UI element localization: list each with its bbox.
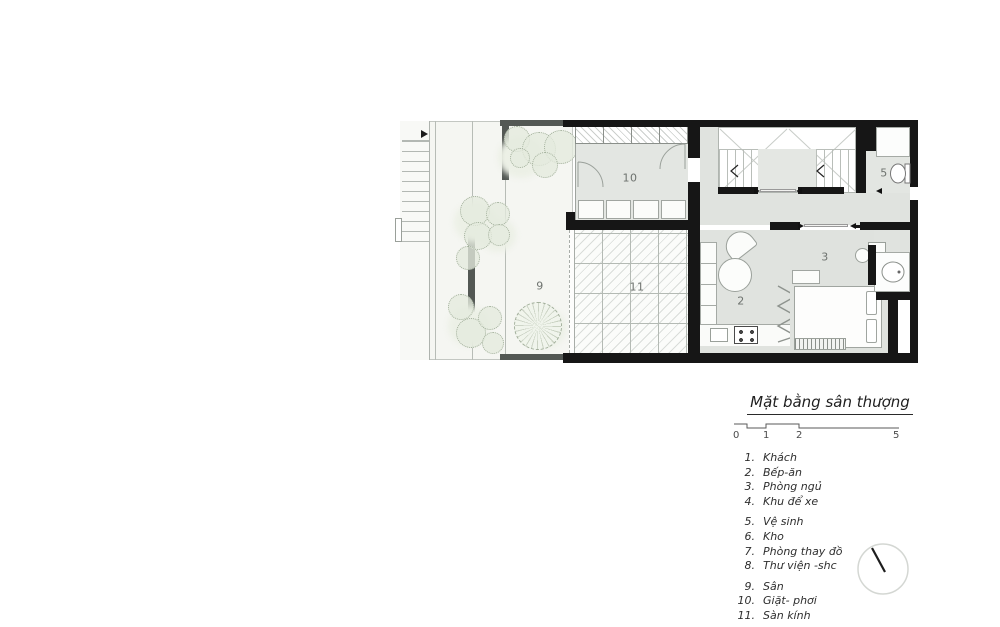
tree-icon <box>482 332 504 354</box>
tree-icon <box>488 224 510 246</box>
washer-icon <box>661 200 687 219</box>
stair-direction-arrow-icon <box>421 130 428 138</box>
interior-wall <box>770 222 800 230</box>
stair-arrow-icon <box>816 164 826 178</box>
washer-icon <box>606 200 632 219</box>
gray-wall <box>500 120 564 126</box>
door-arrow-icon <box>798 223 804 229</box>
round-table <box>718 258 752 292</box>
shower <box>876 127 910 157</box>
planter-line <box>435 121 436 360</box>
floor-plan-drawing: 9 10 11 2 3 5 <box>398 118 920 365</box>
sliding-door <box>760 189 796 192</box>
plan-title: Mặt bằng sân thượng <box>726 392 934 415</box>
stair-arrow-icon <box>730 164 740 178</box>
stove-icon <box>734 326 758 344</box>
tree-icon <box>456 246 480 270</box>
tree-icon <box>532 152 558 178</box>
nightstand <box>792 270 820 284</box>
tree-icon <box>486 202 510 226</box>
legend-item: 6.Kho <box>733 530 843 545</box>
stair-landing <box>758 149 816 192</box>
wall-notch <box>395 218 402 242</box>
room-label-kitchen: 2 <box>737 295 745 308</box>
door-arrow-icon <box>876 188 882 194</box>
legend-item: 5.Vệ sinh <box>733 515 843 530</box>
interior-wall <box>798 187 844 194</box>
gray-wall <box>500 354 564 360</box>
tree-icon <box>448 294 474 320</box>
scale-tick-2: 2 <box>796 430 802 441</box>
legend-item: 7.Phòng thay đồ <box>733 545 843 560</box>
washer-icon <box>633 200 659 219</box>
legend-item: 1.Khách <box>733 451 843 466</box>
interior-wall <box>868 245 876 285</box>
door-opening <box>688 158 700 182</box>
interior-wall <box>718 187 758 194</box>
scale-bar-line <box>733 418 905 430</box>
door-arrow-icon <box>796 188 802 194</box>
sofa <box>700 242 717 328</box>
scale-bar: 0 1 2 5 <box>733 418 905 446</box>
pillow <box>866 319 877 343</box>
legend-item: 3.Phòng ngủ <box>733 480 843 495</box>
sliding-door <box>804 224 848 227</box>
door-arrow-icon <box>754 188 760 194</box>
toilet-icon <box>890 162 911 185</box>
floor-plan-sheet: 9 10 11 2 3 5 Mặt bằng sân thượng 0 1 2 … <box>0 0 1000 627</box>
door-arc-icon <box>660 144 686 170</box>
interior-wall <box>876 292 910 300</box>
legend-item: 10.Giặt- phơi <box>733 594 843 609</box>
interior-wall <box>888 292 898 353</box>
door-arrow-icon <box>850 223 856 229</box>
interior-wall <box>688 220 700 353</box>
exterior-wall <box>563 353 918 363</box>
tree-icon <box>510 148 530 168</box>
legend-item: 2.Bếp-ăn <box>733 466 843 481</box>
interior-wall <box>575 220 700 230</box>
washer-icon <box>578 200 604 219</box>
stair-treads <box>402 140 429 243</box>
wardrobe <box>794 338 846 350</box>
exterior-wall <box>910 120 918 360</box>
room-label-laundry: 10 <box>623 172 638 185</box>
tree-icon <box>478 306 502 330</box>
scale-tick-1: 1 <box>763 430 769 441</box>
kitchen-sink-icon <box>710 328 728 342</box>
scale-tick-0: 0 <box>733 430 739 441</box>
interior-wall <box>860 222 910 230</box>
legend-item: 11.Sàn kính <box>733 609 843 624</box>
legend-item: 8.Thư viện -shc <box>733 559 843 574</box>
door-arc-icon <box>577 162 603 188</box>
legend-item: 9.Sân <box>733 580 843 595</box>
plan-title-text: Mặt bằng sân thượng <box>747 393 913 415</box>
room-label-bedroom: 3 <box>821 251 829 264</box>
legend-item: 4.Khu để xe <box>733 495 843 510</box>
large-tree-icon <box>514 302 562 350</box>
corridor <box>700 193 910 225</box>
room-label-yard: 9 <box>536 280 544 293</box>
interior-wall <box>866 127 876 151</box>
sink-icon <box>880 258 906 286</box>
room-label-glass-floor: 11 <box>630 281 645 294</box>
room-legend: 1.Khách 2.Bếp-ăn 3.Phòng ngủ 4.Khu để xe… <box>733 451 843 624</box>
washing-machines <box>578 200 686 219</box>
compass-icon <box>856 542 910 596</box>
room-label-wc: 5 <box>880 167 888 180</box>
scale-tick-5: 5 <box>893 430 899 441</box>
window-gap <box>910 187 918 200</box>
louver-panels <box>575 127 688 144</box>
